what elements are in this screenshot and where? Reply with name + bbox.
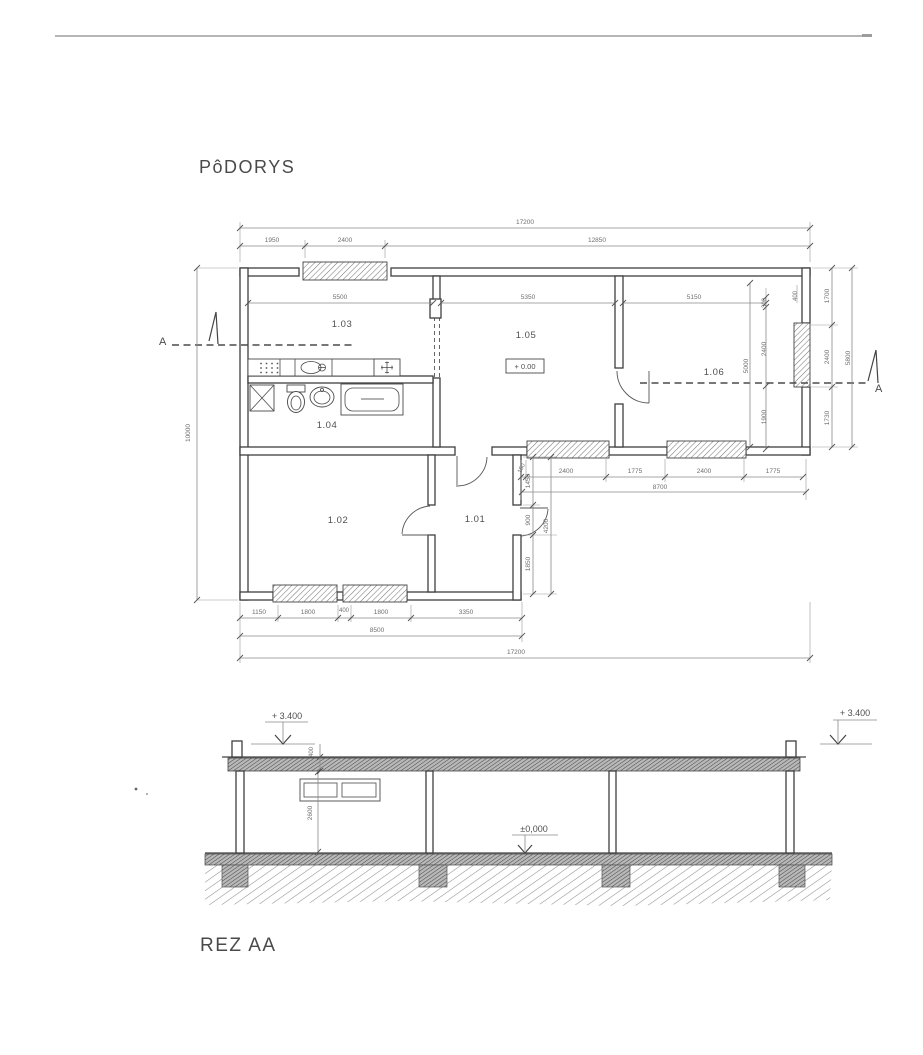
dim-top-c: 12850 [588, 237, 606, 244]
window [303, 262, 387, 280]
level-value: + 3.400 [840, 708, 870, 718]
section-drawing: 400 2600 + 3.400 + 3.400 ±0,000 [205, 708, 877, 906]
parapet-right [786, 741, 796, 757]
blueprint-svg: PôDORYS [0, 0, 923, 1055]
room-label-103: 1.03 [332, 319, 353, 330]
dim-bottom-1800b: 1800 [374, 609, 389, 616]
window [273, 585, 337, 602]
ground-hatch [205, 865, 832, 906]
dim-room105-width: 5350 [521, 294, 536, 301]
section-marker-a-left: A [159, 336, 167, 348]
level-marker-roof-right: + 3.400 [820, 708, 877, 744]
scan-speck [146, 793, 148, 795]
dim-top-total: 17200 [516, 219, 534, 226]
dim-height-2600: 2600 [307, 805, 314, 820]
dim-mid-2400b: 2400 [697, 468, 712, 475]
dim-hall-900: 900 [525, 514, 532, 525]
dim-hall-1450: 1450 [525, 473, 532, 488]
dim-top-b: 2400 [338, 237, 353, 244]
vent-cross-icon [374, 359, 400, 376]
room-label-105: 1.05 [516, 330, 537, 341]
window [527, 441, 609, 458]
dim-inner-2400: 2400 [761, 341, 768, 356]
room-label-104: 1.04 [317, 420, 338, 431]
kitchen-counter [248, 359, 400, 376]
room-label-101: 1.01 [465, 514, 486, 525]
plan-windows [273, 262, 810, 602]
dim-outer-1700: 1700 [824, 288, 831, 303]
dim-inner-5000: 5000 [743, 358, 750, 373]
dim-outer-1730: 1730 [824, 410, 831, 425]
bathtub-icon [341, 384, 403, 415]
dim-hall-1850: 1850 [525, 556, 532, 571]
washbasin-icon [310, 387, 334, 407]
dim-roof-400: 400 [309, 746, 315, 757]
scan-artifact-blob [862, 34, 872, 37]
dim-bottom-8500: 8500 [370, 627, 385, 634]
dim-outer-2400: 2400 [824, 349, 831, 364]
dim-mid-total: 8700 [653, 484, 668, 491]
parapet-left [232, 741, 242, 757]
level-value: ±0,000 [520, 824, 547, 834]
floor-plan: A A 1.03 1.05 1.06 1.04 1.02 1.01 + 0.00 [159, 219, 883, 663]
dim-mid-1775b: 1775 [766, 468, 781, 475]
room-label-106: 1.06 [704, 367, 725, 378]
door-105-106 [617, 371, 649, 403]
dim-top-a: 1950 [265, 237, 280, 244]
scan-artifact-line [55, 35, 872, 37]
drawing-sheet: PôDORYS [0, 0, 923, 1055]
dim-mid-2400a: 2400 [559, 468, 574, 475]
plan-walls [240, 268, 810, 600]
level-value: + 3.400 [272, 711, 302, 721]
plan-title: PôDORYS [199, 157, 295, 177]
dim-left-total: 10000 [185, 424, 192, 442]
level-box-value: + 0.00 [514, 362, 535, 371]
window [343, 585, 407, 602]
dim-bottom-1150: 1150 [252, 609, 266, 616]
room-label-102: 1.02 [328, 515, 349, 526]
level-box: + 0.00 [506, 359, 544, 373]
wall-niche [430, 299, 441, 318]
dim-inner-1900: 1900 [761, 409, 768, 424]
dim-bottom-1800a: 1800 [301, 609, 316, 616]
dim-bottom-3350: 3350 [459, 609, 474, 616]
dim-hall-4200: 4200 [543, 518, 550, 533]
dim-v300: 300 [762, 297, 768, 308]
scan-artifacts [55, 34, 872, 795]
roof-slab [228, 758, 800, 771]
section-title: REZ AA [200, 935, 277, 956]
floor-slab [205, 854, 832, 865]
toilet-icon [287, 385, 305, 413]
door-101-105 [457, 456, 487, 487]
dim-room103-width: 5500 [333, 294, 348, 301]
scan-speck [135, 788, 138, 791]
dim-room106-width: 5150 [687, 294, 702, 301]
level-marker-floor: ±0,000 [512, 824, 558, 853]
washing-machine-icon [250, 385, 274, 411]
dim-outer-5800: 5800 [845, 350, 852, 365]
dim-v400: 400 [793, 290, 799, 301]
bathtub-label-smudge [361, 398, 384, 400]
window [667, 441, 746, 458]
dim-mid-1775a: 1775 [628, 468, 643, 475]
section-marker-a-right: A [875, 383, 883, 395]
bathroom-fixtures [250, 384, 403, 415]
dim-bottom-total: 17200 [507, 649, 525, 656]
window [794, 323, 810, 387]
dim-bottom-400: 400 [339, 608, 350, 614]
level-marker-roof-left: + 3.400 [251, 711, 315, 744]
door-102-101 [402, 506, 430, 535]
section-window [300, 779, 380, 801]
section-line-left: A [159, 312, 354, 348]
